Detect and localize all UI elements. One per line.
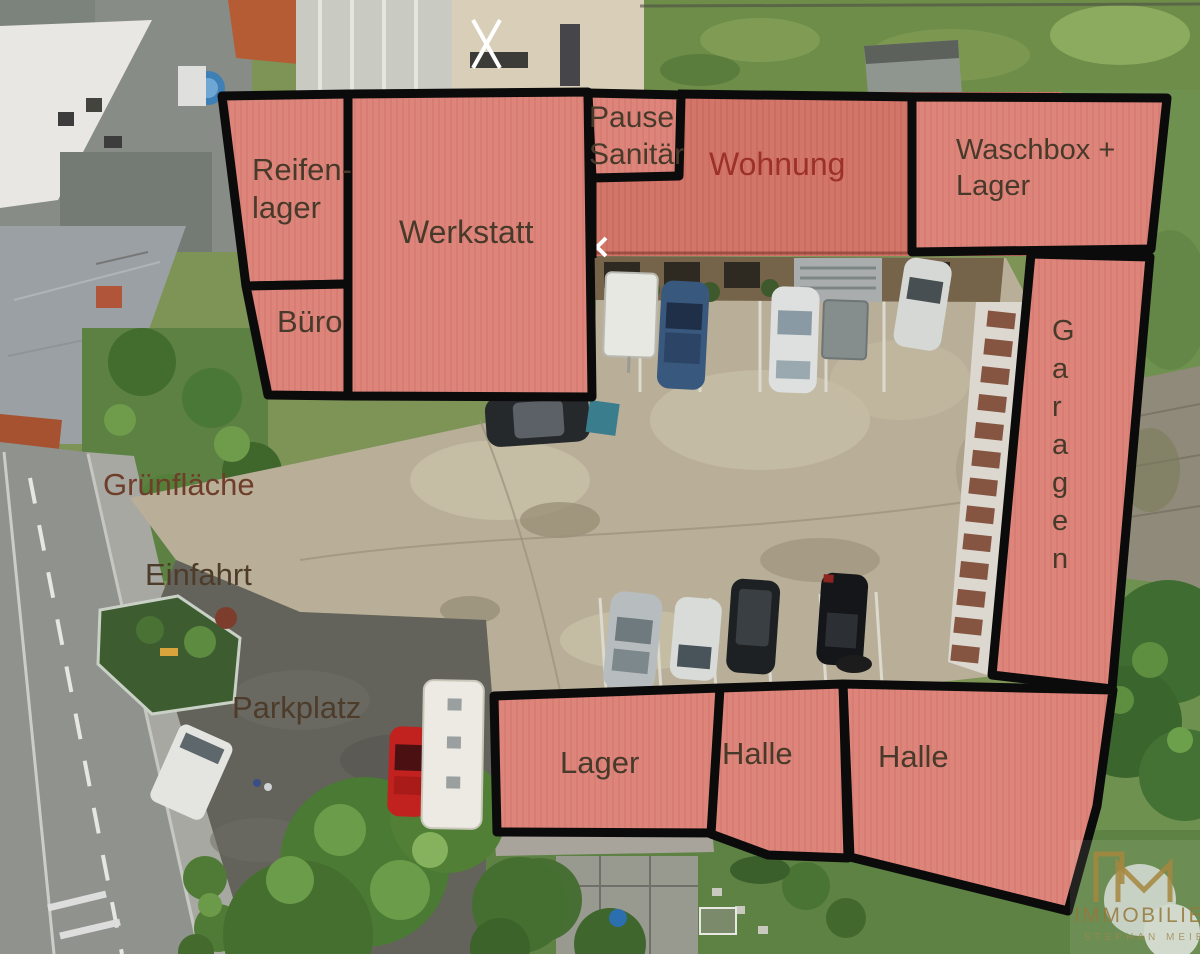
immobilien-logo-icon xyxy=(1088,844,1184,904)
watermark-name: STEPHAN MEIER xyxy=(1084,932,1200,943)
wohnung-top-border xyxy=(678,94,916,97)
watermark: IMMOBILIEN STEPHAN MEIER xyxy=(1070,840,1200,954)
garagen-region xyxy=(992,254,1150,689)
annotation-overlay xyxy=(0,0,1200,954)
pause-sanitaer-region xyxy=(588,93,681,178)
watermark-brand: IMMOBILIEN xyxy=(1074,904,1200,928)
waschbox-lager-region xyxy=(912,97,1167,252)
werkstatt-region xyxy=(348,92,592,397)
aerial-site-plan: Reifen-lagerWerkstattBüroPauseSanitärWoh… xyxy=(0,0,1200,954)
buero-region xyxy=(246,284,348,396)
reifenlager-region xyxy=(222,94,348,286)
lager-sued-region xyxy=(494,688,723,833)
halle-1-region xyxy=(711,684,848,858)
